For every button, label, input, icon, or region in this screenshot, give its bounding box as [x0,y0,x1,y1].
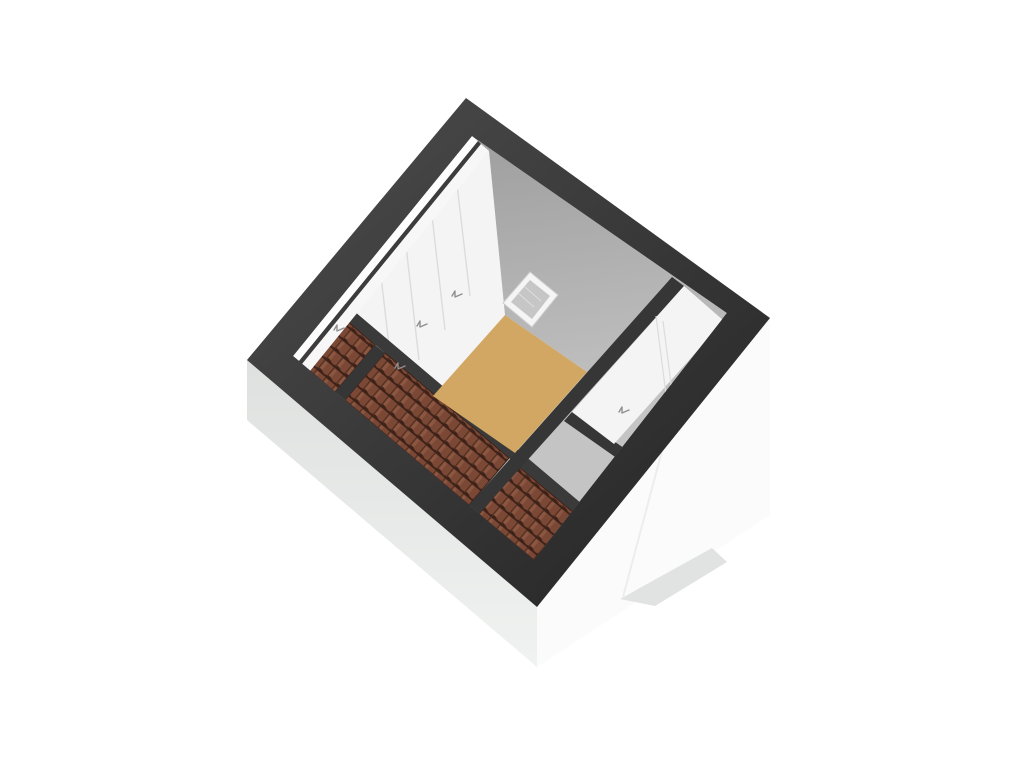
floorplan-3d-viewport[interactable] [0,0,1024,768]
floorplan-3d-render [0,0,1024,768]
